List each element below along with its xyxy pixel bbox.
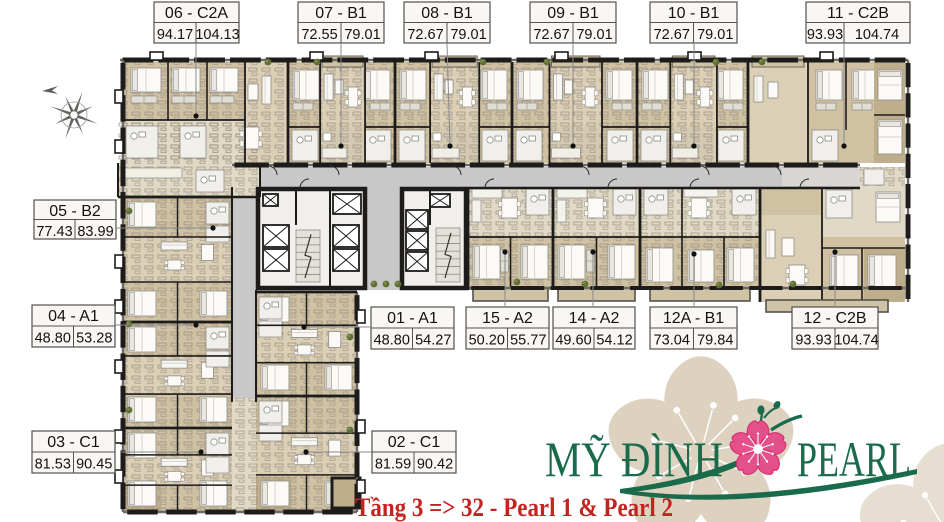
- svg-text:53.28: 53.28: [76, 331, 112, 347]
- svg-text:77.43: 77.43: [36, 224, 72, 240]
- svg-text:02 - C1: 02 - C1: [388, 434, 441, 451]
- svg-text:54.27: 54.27: [415, 333, 451, 349]
- svg-text:72.67: 72.67: [407, 27, 443, 43]
- svg-text:94.17: 94.17: [157, 27, 193, 43]
- svg-text:104.74: 104.74: [834, 333, 878, 349]
- svg-text:50.20: 50.20: [469, 333, 505, 349]
- svg-text:12 - C2B: 12 - C2B: [803, 310, 866, 327]
- svg-text:49.60: 49.60: [555, 333, 591, 349]
- svg-text:12A - B1: 12A - B1: [663, 310, 724, 327]
- svg-text:11 - C2B: 11 - C2B: [827, 5, 889, 22]
- svg-text:09 - B1: 09 - B1: [547, 5, 599, 22]
- svg-text:79.01: 79.01: [576, 27, 612, 43]
- svg-text:73.04: 73.04: [654, 333, 690, 349]
- svg-text:48.80: 48.80: [374, 333, 410, 349]
- svg-text:01 - A1: 01 - A1: [387, 310, 438, 327]
- svg-text:10 - B1: 10 - B1: [668, 5, 720, 22]
- svg-text:81.59: 81.59: [375, 457, 411, 473]
- svg-text:79.84: 79.84: [697, 333, 733, 349]
- svg-text:79.01: 79.01: [697, 27, 733, 43]
- svg-text:Tầng 3 => 32 - Pearl 1 & Pearl: Tầng 3 => 32 - Pearl 1 & Pearl 2: [355, 493, 673, 522]
- svg-text:06 - C2A: 06 - C2A: [165, 5, 228, 22]
- svg-text:14 - A2: 14 - A2: [569, 310, 620, 327]
- svg-text:07 - B1: 07 - B1: [315, 5, 367, 22]
- svg-text:05 - B2: 05 - B2: [49, 203, 101, 220]
- svg-text:104.13: 104.13: [195, 27, 239, 43]
- svg-text:08 - B1: 08 - B1: [421, 5, 473, 22]
- svg-text:48.80: 48.80: [35, 331, 71, 347]
- svg-text:55.77: 55.77: [510, 333, 546, 349]
- svg-text:15 - A2: 15 - A2: [482, 310, 533, 327]
- svg-text:72.55: 72.55: [301, 27, 337, 43]
- svg-text:93.93: 93.93: [795, 333, 831, 349]
- svg-text:04 - A1: 04 - A1: [48, 308, 99, 325]
- svg-text:104.74: 104.74: [855, 27, 899, 43]
- svg-text:90.42: 90.42: [417, 457, 453, 473]
- svg-text:79.01: 79.01: [450, 27, 486, 43]
- svg-text:54.12: 54.12: [596, 333, 632, 349]
- svg-text:72.67: 72.67: [533, 27, 569, 43]
- svg-text:03 - C1: 03 - C1: [47, 434, 100, 451]
- svg-text:81.53: 81.53: [35, 457, 71, 473]
- svg-text:90.45: 90.45: [76, 457, 112, 473]
- svg-text:93.93: 93.93: [807, 27, 843, 43]
- svg-text:79.01: 79.01: [344, 27, 380, 43]
- svg-text:72.67: 72.67: [654, 27, 690, 43]
- svg-text:83.99: 83.99: [77, 224, 113, 240]
